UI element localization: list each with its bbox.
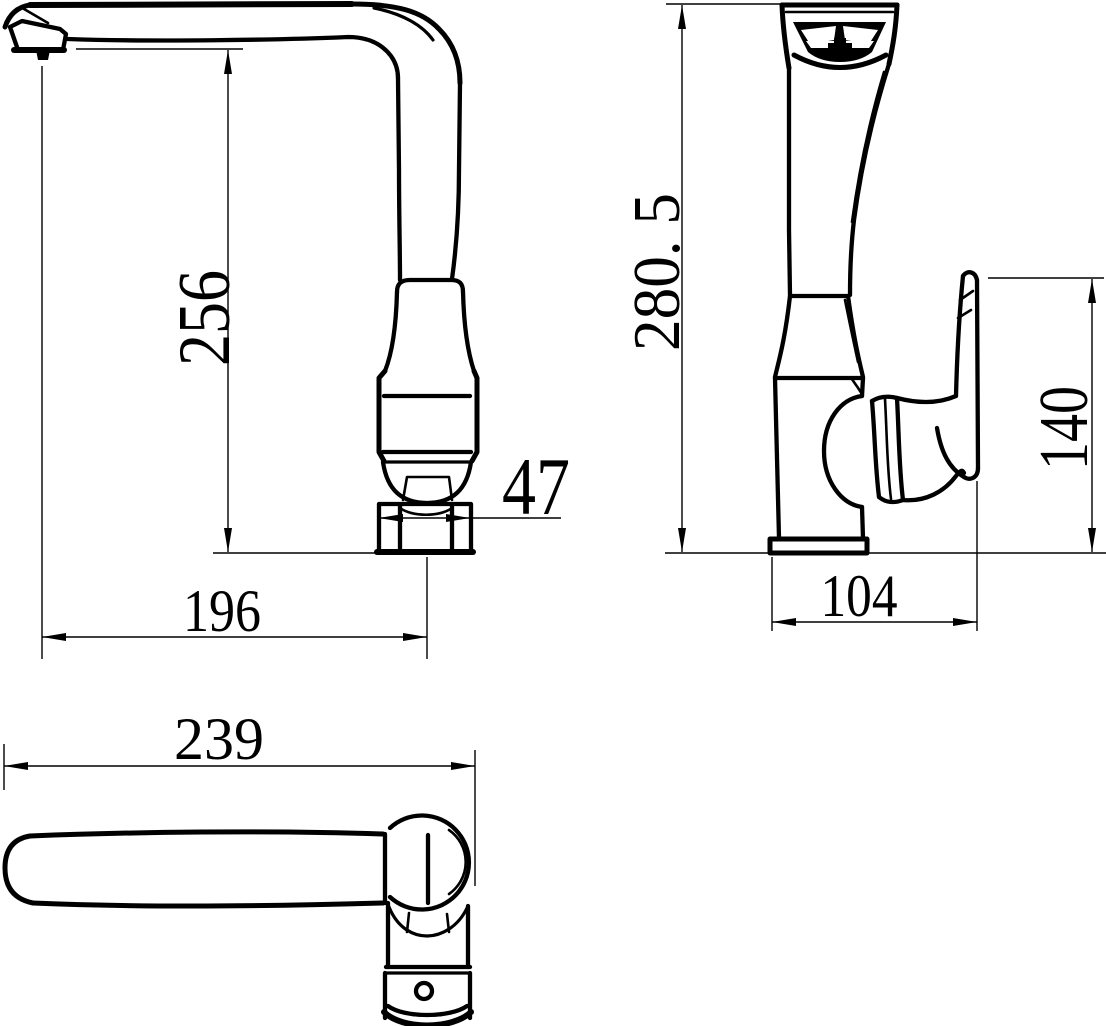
dim-104-text: 104 — [821, 563, 898, 629]
dim-256-text: 256 — [164, 270, 246, 366]
trumpet-left — [775, 296, 790, 377]
neck-left-edge — [789, 68, 790, 295]
faucet-three-view-drawing: 256 47 196 280. 5 — [0, 0, 1106, 1026]
dim-104: 104 — [772, 481, 977, 631]
trumpet-right — [848, 296, 863, 377]
tv-handle-bottom-inner-arc — [388, 1006, 467, 1015]
ball-top-connector — [851, 378, 862, 394]
body-left-wing — [379, 371, 385, 461]
dim-239-arrow-left — [4, 762, 28, 770]
dim-196-text: 196 — [183, 578, 261, 644]
front-base-ring — [770, 539, 867, 553]
dim-280-5-arrow-up — [678, 5, 686, 29]
tv-spout-top-edge — [30, 832, 383, 836]
collar-right — [897, 398, 903, 500]
dim-47-arrow-right — [446, 514, 470, 522]
spout-tip-nub — [36, 50, 50, 60]
dim-280-5-text: 280. 5 — [620, 193, 694, 351]
dim-280-5-arrow-down — [678, 528, 686, 552]
dim-239-text: 239 — [174, 706, 264, 772]
dim-104-arrow-left — [772, 618, 796, 626]
blade-top-cap — [963, 272, 977, 280]
collar-inner-line — [885, 399, 891, 499]
dim-256: 256 — [76, 49, 246, 552]
base-outline — [379, 504, 471, 552]
dim-256-arrow-down — [224, 528, 232, 552]
dim-47-arrow-left — [379, 514, 403, 522]
spout-arm-bottom-edge — [68, 37, 398, 78]
dim-239: 239 — [4, 706, 475, 886]
body-left-upper — [385, 292, 397, 371]
dim-140-text: 140 — [1026, 386, 1103, 470]
corner-inner-arc — [374, 8, 433, 40]
neck-right-edge — [850, 64, 889, 295]
dim-239-arrow-right — [451, 762, 475, 770]
dim-104-arrow-right — [953, 618, 977, 626]
fbody-right-lower — [862, 507, 863, 538]
spout-arm-top-edge — [30, 4, 352, 5]
horn-top — [897, 396, 956, 402]
front-view — [770, 5, 978, 553]
tv-joint-lines — [385, 834, 428, 903]
dim-140: 140 — [988, 278, 1104, 552]
blade-left-edge — [956, 276, 963, 396]
spout-arm-corner-outer — [352, 4, 460, 83]
spout-tip-outline — [10, 21, 66, 50]
drawing-canvas: 256 47 196 280. 5 — [0, 0, 1106, 1026]
horn-bottom-curve — [903, 471, 964, 500]
collar-left — [872, 401, 879, 497]
dim-196-arrow-left — [42, 633, 66, 641]
head-right-edge — [889, 5, 897, 64]
ball-housing-arc — [824, 396, 862, 507]
tv-handle-neck-curve — [389, 907, 467, 936]
body-right-wing — [472, 371, 477, 461]
base-inner-arc — [400, 508, 452, 515]
dim-47-text: 47 — [502, 441, 570, 532]
dim-196-arrow-right — [403, 633, 427, 641]
head-left-edge — [782, 5, 789, 68]
blade-right-edge — [977, 280, 978, 468]
tv-spout-end-cap — [5, 836, 33, 903]
tv-spout-bottom-edge — [33, 903, 383, 906]
top-view — [5, 815, 471, 1025]
tv-handle-neck-ticks — [407, 913, 449, 932]
body-shoulder — [397, 280, 463, 292]
tv-handle-hole — [416, 983, 432, 999]
dim-140-arrow-up — [1088, 279, 1096, 303]
dim-140-arrow-down — [1088, 528, 1096, 552]
riser-right-edge — [452, 83, 460, 279]
fbody-left-edge — [775, 378, 779, 538]
dim-280-5: 280. 5 — [620, 4, 780, 552]
body-bowl — [383, 462, 471, 503]
dim-256-arrow-up — [224, 50, 232, 74]
bowl-inner-lines — [403, 477, 452, 500]
riser-left-edge — [398, 78, 400, 280]
body-right-upper — [463, 292, 474, 371]
